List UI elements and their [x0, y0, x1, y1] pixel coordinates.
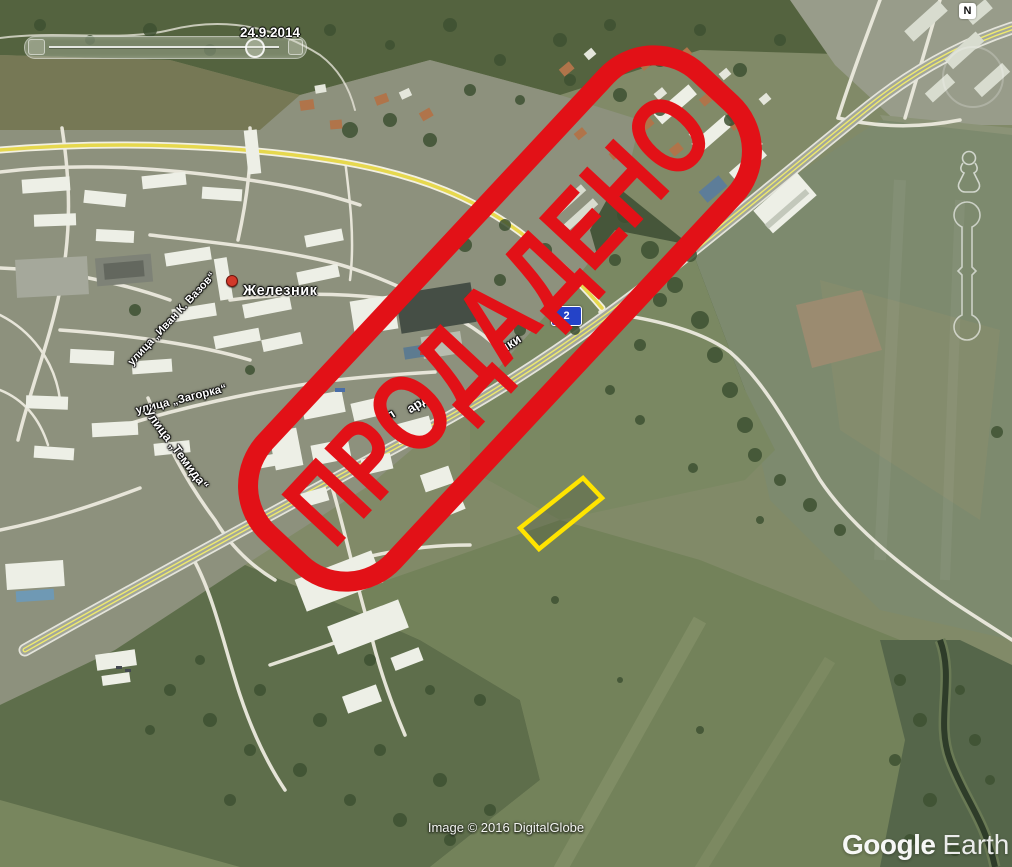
pegman-icon: [958, 152, 979, 193]
compass-north-button[interactable]: N: [959, 3, 976, 19]
place-marker-zheleznik[interactable]: [226, 275, 238, 287]
compass-n-label: N: [964, 5, 972, 17]
imagery-date-label: 24.9.2014: [240, 25, 300, 40]
google-earth-viewport: Железник улица „Иван К. Вазов“ улица „За…: [0, 0, 1012, 867]
zoom-slider-control[interactable]: [948, 198, 986, 350]
logo-google: Google: [842, 829, 935, 860]
time-slider-end-cap[interactable]: [288, 39, 303, 55]
time-slider-handle[interactable]: [245, 38, 265, 58]
google-earth-logo: GoogleEarth: [842, 829, 1009, 861]
pegman-control[interactable]: [950, 146, 988, 202]
time-slider-start-cap[interactable]: [28, 39, 45, 55]
logo-earth: Earth: [942, 829, 1009, 860]
compass-ring[interactable]: [942, 46, 1004, 108]
zoom-slider-outline: [954, 202, 980, 340]
